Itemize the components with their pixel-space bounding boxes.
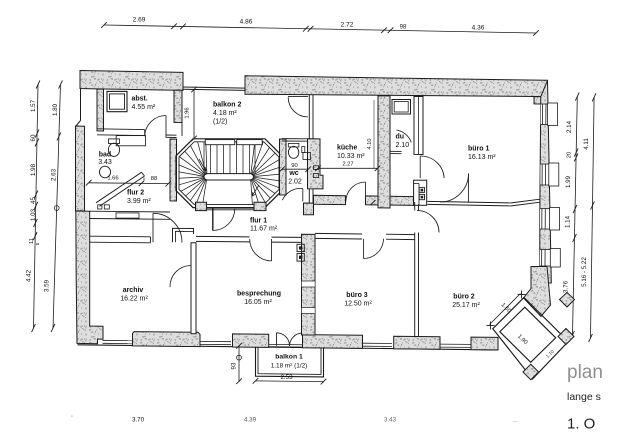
svg-text:1.57: 1.57 — [30, 99, 37, 112]
svg-text:...: ... — [512, 417, 517, 424]
svg-text:1. O: 1. O — [567, 416, 595, 433]
svg-text:wc: wc — [288, 170, 298, 177]
svg-text:1.98: 1.98 — [30, 163, 37, 176]
svg-text:90: 90 — [291, 163, 297, 169]
svg-text:1.14: 1.14 — [565, 215, 572, 228]
svg-text:büro 2: büro 2 — [453, 294, 474, 301]
svg-text:10.33 m²: 10.33 m² — [337, 153, 365, 160]
svg-text:plan: plan — [567, 362, 603, 383]
svg-text:1.99: 1.99 — [565, 175, 572, 188]
svg-text:2.10: 2.10 — [396, 142, 410, 149]
svg-text:4.10: 4.10 — [367, 139, 373, 150]
svg-text:4.11: 4.11 — [583, 138, 590, 150]
svg-text:flur 1: flur 1 — [250, 218, 267, 225]
svg-text:2.02: 2.02 — [288, 178, 302, 185]
svg-text:5: 5 — [35, 242, 40, 245]
svg-text:bad: bad — [99, 152, 111, 159]
svg-text:3.59: 3.59 — [44, 279, 51, 292]
svg-text:2.69: 2.69 — [133, 17, 146, 24]
svg-text:1.18 m² (1/2): 1.18 m² (1/2) — [271, 363, 308, 370]
svg-text:büro 1: büro 1 — [468, 146, 489, 153]
svg-text:4.36: 4.36 — [472, 25, 485, 32]
svg-text:2.53: 2.53 — [280, 374, 293, 381]
svg-text:2.63: 2.63 — [51, 168, 58, 181]
svg-text:12.50 m²: 12.50 m² — [344, 301, 372, 308]
svg-text:1.66: 1.66 — [107, 176, 118, 182]
svg-text:balkon 2: balkon 2 — [213, 102, 242, 109]
svg-text:4.18 m²: 4.18 m² — [213, 110, 237, 117]
svg-text:3.76: 3.76 — [563, 280, 570, 293]
svg-text:3.43: 3.43 — [98, 159, 112, 166]
svg-text:lange s: lange s — [567, 391, 601, 403]
svg-text:11.67 m²: 11.67 m² — [250, 226, 278, 233]
svg-text:5.16 - 5.22: 5.16 - 5.22 — [581, 257, 588, 287]
svg-text:16.22 m²: 16.22 m² — [120, 296, 148, 303]
svg-text:25.17 m²: 25.17 m² — [452, 302, 480, 309]
svg-text:1.80: 1.80 — [52, 103, 59, 116]
svg-text:abst.: abst. — [132, 96, 148, 103]
svg-text:93: 93 — [231, 362, 238, 369]
svg-text:flur 2: flur 2 — [127, 190, 144, 197]
svg-text:4.55 m²: 4.55 m² — [132, 104, 156, 111]
svg-text:1.03: 1.03 — [30, 208, 37, 221]
svg-text:16.05 m²: 16.05 m² — [244, 299, 272, 306]
svg-text:(1/2): (1/2) — [213, 119, 227, 126]
svg-text:2.72: 2.72 — [341, 22, 354, 29]
svg-text:4.42: 4.42 — [26, 269, 33, 282]
svg-text:du: du — [396, 134, 405, 141]
svg-text:45: 45 — [30, 197, 37, 204]
svg-text:16.13 m²: 16.13 m² — [468, 154, 496, 161]
svg-text:60: 60 — [30, 134, 37, 141]
svg-text:20: 20 — [567, 152, 573, 158]
svg-text:88: 88 — [151, 176, 157, 182]
svg-text:büro 3: büro 3 — [346, 292, 367, 299]
svg-text:archiv: archiv — [123, 287, 144, 294]
svg-text:besprechung: besprechung — [237, 291, 281, 298]
svg-text:2.27: 2.27 — [342, 161, 353, 167]
svg-text:2.14: 2.14 — [566, 120, 573, 133]
svg-text:98: 98 — [400, 25, 407, 31]
svg-text:1.96: 1.96 — [185, 107, 191, 118]
svg-text:3.43: 3.43 — [384, 417, 397, 424]
svg-text:3.99 m²: 3.99 m² — [127, 198, 151, 205]
svg-text:4.86: 4.86 — [240, 19, 253, 26]
svg-text:4.39: 4.39 — [244, 417, 257, 424]
svg-text:küche: küche — [337, 145, 357, 152]
svg-text:': ' — [71, 415, 72, 422]
svg-text:3.70: 3.70 — [132, 417, 145, 424]
svg-text:balkon 1: balkon 1 — [275, 354, 303, 361]
